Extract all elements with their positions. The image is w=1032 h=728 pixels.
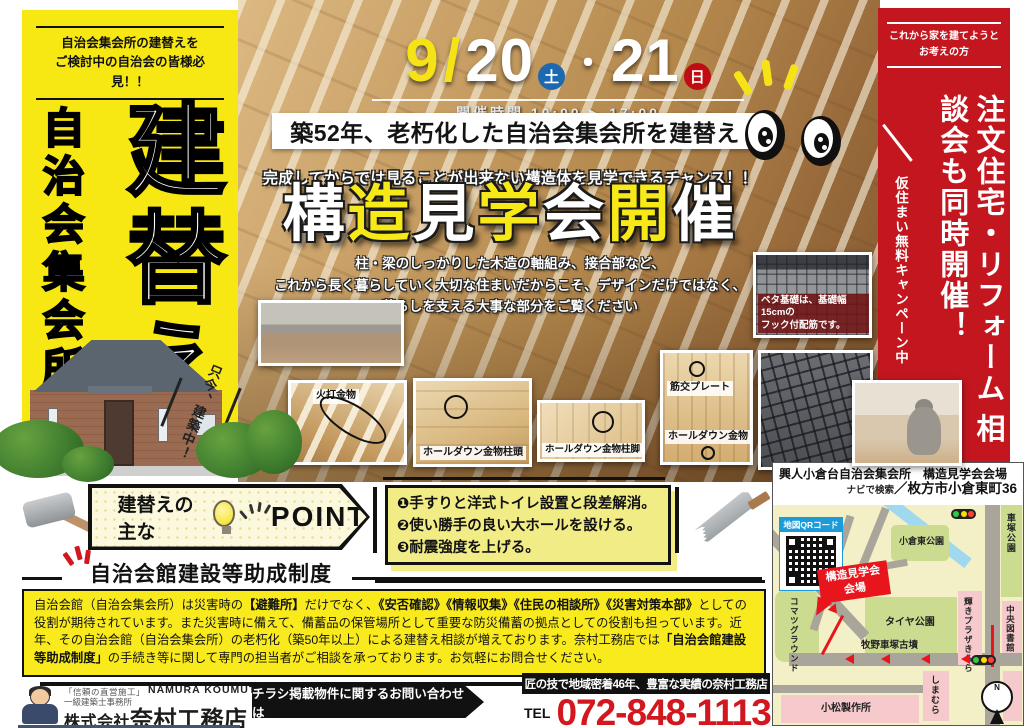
photo-caption: 筋交プレート [667,381,733,396]
flyer-page: 自治会集会所の建替えを ご検討中の自治会の皆様必見！！ 自治会集会所 建替え 只… [0,0,1032,728]
hiuchi-hardware-photo: 火打金物 [288,380,407,465]
map-label-store: しまむら [929,675,939,715]
points-list: ❶手すりと洋式トイレ設置と段差解消。 ❷使い勝手の良い大ホールを設ける。 ❸耐震… [385,485,671,565]
map-label-factory: 小松製作所 [821,703,871,714]
title-char: 見 [412,181,477,249]
date-slash: / [444,26,462,95]
map-road [1000,653,1022,666]
title-char: 催 [673,181,738,249]
caption-line: ベタ基礎は、基礎幅15cmの [761,295,866,320]
route-arrow [961,654,970,664]
map-address: ナビで検索／枚方市小倉東町36 [779,481,1017,497]
annotation-circle [689,361,705,377]
description-line: これから長く暮らしていく大切な住まいだからこそ、デザインだけではなく、 [250,275,770,297]
beta-foundation-photo: ベタ基礎は、基礎幅15cmの フック付配筋です。 [753,252,872,338]
eyes-icon [745,108,865,168]
event-day1: 20 [465,26,534,95]
notice-box: 自治会集会所の建替えを ご検討中の自治会の皆様必見！！ [36,26,224,100]
company-tagline: 匠の技で地域密着46年、豊富な実績の奈村工務店 [522,673,770,694]
holddown-top-photo: ホールダウン金物柱頭 [413,378,532,467]
campaign-note: 仮住まい無料キャンペーン中 [890,176,910,391]
consultation-text-1: 注文住宅・リフォーム [972,94,1004,404]
worker-photo [852,380,962,466]
map-label-park: 車塚公園 [1005,513,1015,553]
house-canopy [88,386,152,394]
title-char: 構 [282,181,347,249]
event-day1-weekday: 土 [538,63,565,90]
qr-label: 地図QRコード [780,518,842,532]
lightbulb-icon [213,500,235,527]
tree-bush [62,446,114,482]
title-char: 学 [477,181,542,249]
saw-icon [691,489,760,544]
main-title: 構造見学会開催 [250,184,770,246]
point-item: ❷使い勝手の良い大ホールを設ける。 [397,516,659,538]
notice-line1: 自治会集会所の建替えを [38,34,222,53]
notice-line2: ご検討中の自治会の皆様必見！！ [38,53,222,92]
divider [373,487,377,553]
compass-icon: N [981,681,1013,713]
eye-icon [801,116,841,166]
burst-icon [240,500,264,522]
event-date: 9 / 20 土 ・ 21 日 [360,22,756,98]
divider [22,577,62,580]
map-nav-label: ナビで検索 [846,485,894,496]
route-arrow [845,654,854,664]
tree-bush [246,410,302,474]
map-venue-title: 興人小倉台自治会集会所 構造見学会会場 [779,467,1017,481]
map-label-ground: コマツグラウンド [789,597,798,673]
date-separator: ・ [571,36,605,85]
map-label-kofun: 牧野車塚古墳 [861,641,918,651]
title-char: 開 [608,181,673,249]
worker-figure [907,407,941,455]
telephone-row: TEL 072-848-1113 [524,694,772,728]
title-char: 会 [543,181,608,249]
point-arrow-banner: 建替えの主な POINT [88,484,370,550]
route-line [821,615,844,655]
tel-number: 072-848-1113 [556,694,770,728]
map-road [773,685,923,693]
subsidy-heading: 自治会館建設等助成制度 [90,558,332,588]
map-label-park: タイヤ公園 [885,617,935,628]
traffic-light-icon [971,655,996,665]
age-banner: 築52年、老朽化した自治会集会所を建替え [272,113,758,149]
map-label-park: 小倉東公園 [899,537,944,547]
caption-line: フック付配筋です。 [761,320,866,332]
audience-line2: お考えの方 [887,45,1001,61]
holddown-base-photo: ホールダウン金物柱脚 [537,400,645,462]
divider [383,477,665,480]
audience-box: これから家を建てようと お考えの方 [887,22,1001,68]
divider [18,725,240,728]
eye-icon [745,110,785,160]
map-address-value: ／枚方市小倉東町36 [894,481,1017,496]
emphasis-tick-icon [62,552,74,566]
route-arrow [921,654,930,664]
annotation-circle [444,395,468,419]
photo-caption: ホールダウン金物柱頭 [420,446,526,461]
saw-icon [747,491,770,510]
point-item: ❶手すりと洋式トイレ設置と段差解消。 [397,494,659,516]
slash-decoration [882,124,912,162]
tel-label: TEL [524,705,550,721]
description-line: 柱・梁のしっかりした木造の軸組み、接合部など、 [250,253,770,275]
house-illustration: 只今、建築中！ [0,328,300,483]
map-header: 興人小倉台自治会集会所 構造見学会会場 ナビで検索／枚方市小倉東町36 [773,463,1023,498]
subsidy-body: 自治会館（自治会集会所）は災害時の【避難所】だけでなく、《安否確認》《情報収集》… [22,589,766,677]
logo-company-name: 株式会社奈村工務店 [64,700,248,728]
annotation-circle [592,411,614,433]
point-item: ❸耐震強度を上げる。 [397,538,659,560]
point-word: POINT [271,501,367,533]
emphasis-tick-icon [74,546,82,561]
map-panel: 興人小倉台自治会集会所 構造見学会会場 ナビで検索／枚方市小倉東町36 [772,462,1024,726]
point-label: 建替えの主な [118,490,208,544]
title-char: 造 [347,181,412,249]
photo-caption: ホールダウン金物柱脚 [542,443,643,457]
date-divider [372,99,744,101]
event-month: 9 [405,26,439,95]
event-day2: 21 [611,26,680,95]
mascot-icon [20,688,60,724]
traffic-light-icon [951,509,976,519]
annotation-circle [701,446,715,460]
map-label-building: 中央図書館 [1005,605,1014,653]
route-arrow [881,654,890,664]
event-day2-weekday: 日 [684,63,711,90]
audience-line1: これから家を建てようと [887,29,1001,45]
map-canvas: 小倉東公園 タイヤ公園 輝きプラザきらら 車塚公園 中央図書館 コマツグラウンド… [773,505,1023,725]
compass-n: N [983,684,1011,692]
divider [375,580,765,583]
hammer-icon [22,491,77,528]
divider [675,487,679,553]
photo-caption: ベタ基礎は、基礎幅15cmの フック付配筋です。 [758,294,869,333]
sujikai-plate-photo: 筋交プレート ホールダウン金物 [660,350,753,465]
photo-caption: ホールダウン金物 [665,430,751,445]
inquiry-ribbon: チラシ掲載物件に関するお問い合わせは [252,686,484,718]
